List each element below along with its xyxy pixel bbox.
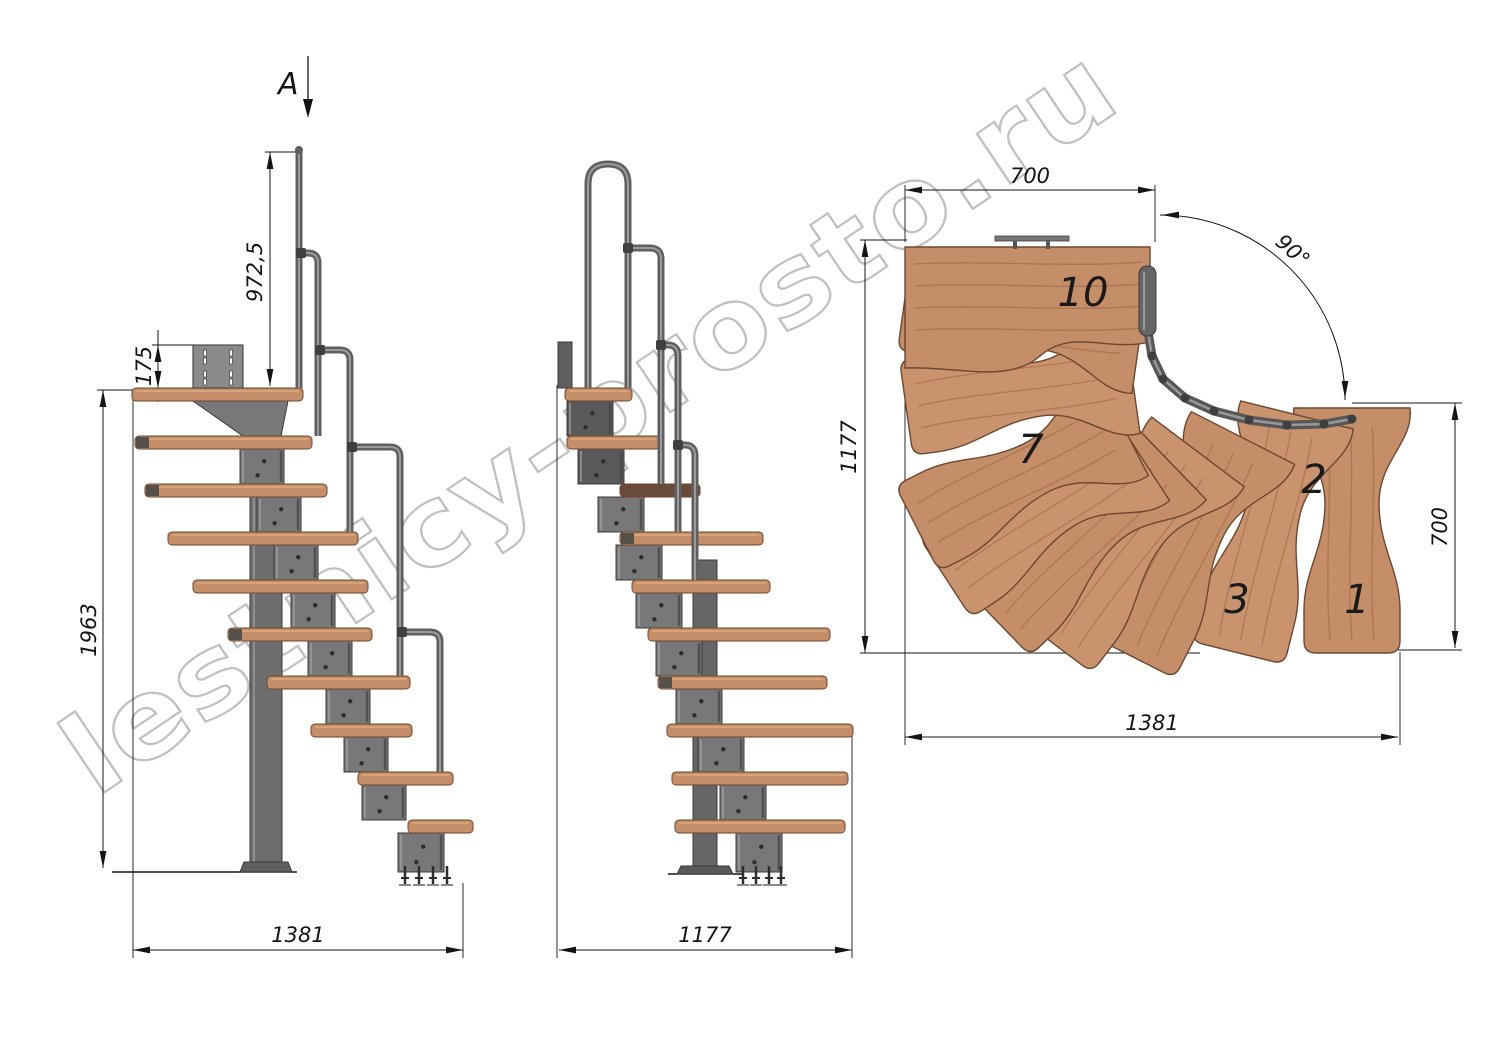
- stair-tread-side: [648, 628, 830, 641]
- stair-tread-side: [228, 628, 372, 641]
- handrail-clamp: [397, 627, 407, 637]
- spine-module: [720, 785, 766, 820]
- dim-plan-right-depth-label: 700: [1428, 507, 1452, 547]
- module-bolt-hole: [348, 699, 352, 703]
- module-bolt-hole: [341, 713, 345, 717]
- handrail-joint: [1148, 352, 1157, 361]
- module-bolt-hole: [421, 844, 425, 848]
- column-base: [240, 862, 292, 872]
- module-bolt-hole: [632, 569, 636, 573]
- stair-tread-side: [311, 724, 412, 737]
- bracket-stub: [1013, 241, 1017, 249]
- module-bolt-hole: [377, 809, 381, 813]
- module-bolt-hole: [699, 699, 703, 703]
- module-bolt-hole: [323, 665, 327, 669]
- spine-module: [636, 593, 682, 628]
- tread-end-cap: [146, 485, 159, 496]
- dimension-arrow: [1162, 212, 1179, 219]
- spine-module: [598, 497, 644, 532]
- plate-hole: [204, 358, 207, 364]
- stair-tread-side: [658, 676, 827, 689]
- module-bolt-hole: [679, 651, 683, 655]
- module-bolt-hole: [639, 555, 643, 559]
- dimension-arrow: [267, 152, 274, 169]
- dimension-arrow: [133, 947, 150, 954]
- dimension-arrow: [100, 851, 107, 868]
- spine-module: [257, 497, 301, 532]
- dim-plan-left-depth-label: 1177: [837, 420, 861, 474]
- column-base: [677, 866, 733, 874]
- spine-module: [656, 641, 702, 676]
- stair-tread-side: [168, 532, 358, 545]
- dim-plate-height-label: 175: [132, 346, 156, 386]
- dimension-arrow: [446, 947, 463, 954]
- stair-tread-side: [135, 436, 312, 449]
- module-bolt-hole: [289, 569, 293, 573]
- stair-tread-side: [632, 580, 770, 593]
- module-bolt-hole: [296, 555, 300, 559]
- dim-plan-top-width-label: 700: [1010, 164, 1050, 188]
- module-bolt-hole: [366, 747, 370, 751]
- spine-module: [291, 593, 335, 628]
- dimension-arrow: [1381, 734, 1398, 741]
- handrail-tube: [320, 350, 350, 532]
- plan-tread-number-10: 10: [1058, 270, 1109, 316]
- dimension-arrow: [559, 947, 576, 954]
- stair-tread-side: [565, 388, 632, 401]
- section-arrow-label: A: [276, 67, 299, 102]
- handrail-joint: [1283, 421, 1292, 430]
- spine-module: [326, 689, 370, 724]
- module-bolt-hole: [262, 459, 266, 463]
- spine-module: [344, 737, 388, 772]
- dimension-arrow: [905, 734, 922, 741]
- module-bolt-hole: [652, 617, 656, 621]
- handrail-clamp: [673, 440, 683, 450]
- staircase-technical-drawing: lestnicy-prosto.ru A 972,5 175 1963 1381…: [0, 0, 1500, 1061]
- plan-view: [860, 185, 1462, 745]
- module-bolt-hole: [743, 795, 747, 799]
- wall-mount-plate: [193, 345, 243, 388]
- stair-tread-side: [132, 388, 303, 401]
- module-bolt-hole: [590, 411, 594, 415]
- spine-module: [240, 449, 284, 484]
- module-bolt-hole: [621, 507, 625, 511]
- plan-tread-number-3: 3: [1224, 577, 1249, 623]
- handrail-joint: [1181, 394, 1190, 403]
- handrail-clamp: [296, 248, 306, 258]
- dimension-arrow: [1452, 631, 1459, 648]
- plate-hole: [230, 350, 233, 356]
- handrail-clamp: [315, 345, 325, 355]
- handrail-clamp: [656, 340, 666, 350]
- module-bolt-hole: [279, 507, 283, 511]
- plate-hole: [204, 379, 207, 385]
- handrail-tube: [301, 253, 318, 436]
- dim-side-length-label: 1381: [271, 923, 324, 947]
- spine-module: [578, 449, 624, 484]
- handrail-joint: [1210, 407, 1219, 416]
- spine-module: [362, 785, 406, 820]
- module-bolt-hole: [306, 617, 310, 621]
- module-bolt-hole: [759, 844, 763, 848]
- tread-end-cap: [136, 437, 149, 448]
- module-bolt-hole: [659, 603, 663, 607]
- dim-plan-bottom-length-label: 1381: [1125, 711, 1178, 735]
- dim-front-width-label: 1177: [678, 923, 732, 947]
- stair-tread-side: [145, 484, 327, 497]
- dimension-arrow: [267, 369, 274, 386]
- stair-tread-side: [675, 820, 845, 833]
- spine-module: [676, 689, 722, 724]
- stair-tread-side: [358, 772, 453, 785]
- dim-total-height-label: 1963: [77, 603, 101, 656]
- spine-module: [274, 545, 318, 580]
- module-bolt-hole: [272, 521, 276, 525]
- plate-hole: [230, 371, 233, 377]
- stair-tread-side: [672, 772, 848, 785]
- dim-turn-angle-label: 90°: [1271, 229, 1315, 272]
- spine-module: [698, 737, 744, 772]
- handrail-joint: [1348, 415, 1357, 424]
- module-bolt-hole: [752, 860, 756, 864]
- plate-hole: [230, 358, 233, 364]
- spine-module: [308, 641, 352, 676]
- dimension-arrow: [1342, 381, 1349, 398]
- handrail-tube-highlight: [320, 350, 350, 532]
- handrail-joint: [1159, 375, 1168, 384]
- module-bolt-hole: [384, 795, 388, 799]
- spine-funnel: [193, 401, 288, 441]
- plate-hole: [204, 350, 207, 356]
- module-bolt-hole: [672, 665, 676, 669]
- spine-module: [567, 401, 613, 436]
- handrail-joint: [1320, 420, 1329, 429]
- dimension-arrow: [1452, 403, 1459, 420]
- module-bolt-hole: [614, 521, 618, 525]
- module-bolt-hole: [692, 713, 696, 717]
- module-bolt-hole: [330, 651, 334, 655]
- tread-end-cap: [659, 677, 672, 688]
- tread-end-cap: [229, 629, 242, 640]
- dim-handrail-height-label: 972,5: [243, 242, 267, 302]
- module-bolt-hole: [736, 809, 740, 813]
- handrail-tube-highlight: [402, 632, 440, 772]
- plan-tread-number-1: 1: [1344, 577, 1369, 623]
- stair-tread-side: [667, 724, 853, 737]
- module-bolt-hole: [594, 473, 598, 477]
- plate-edge: [558, 342, 572, 388]
- module-bolt-hole: [714, 761, 718, 765]
- stair-tread-side: [193, 580, 368, 593]
- module-bolt-hole: [313, 603, 317, 607]
- plan-handrail-hoop: [1139, 266, 1156, 336]
- handrail-joint: [1245, 416, 1254, 425]
- handrail-clamp: [623, 243, 633, 253]
- rail-cap: [295, 146, 303, 154]
- spine-module: [616, 545, 662, 580]
- plan-tread-number-2: 2: [1301, 457, 1326, 503]
- dimension-arrow: [862, 636, 869, 653]
- plan-tread-number-7: 7: [1018, 427, 1044, 473]
- dimension-arrow: [100, 390, 107, 407]
- module-bolt-hole: [255, 473, 259, 477]
- handrail-clamp: [347, 442, 357, 452]
- stair-tread-side: [567, 436, 660, 449]
- plate-hole: [204, 371, 207, 377]
- technical-drawing-page: lestnicy-prosto.ru A 972,5 175 1963 1381…: [0, 0, 1500, 1061]
- module-bolt-hole: [601, 459, 605, 463]
- stair-tread-side: [620, 484, 700, 497]
- plate-hole: [230, 379, 233, 385]
- tread-end-cap: [621, 533, 634, 544]
- module-bolt-hole: [721, 747, 725, 751]
- stair-tread-side: [408, 820, 473, 833]
- bracket-stub: [1046, 241, 1050, 249]
- angle-arc: [1160, 215, 1345, 400]
- handrail-tube: [402, 632, 440, 772]
- dimension-arrow: [835, 947, 852, 954]
- dimension-arrow: [1138, 187, 1155, 194]
- module-bolt-hole: [414, 860, 418, 864]
- section-arrowhead: [303, 99, 313, 118]
- module-bolt-hole: [359, 761, 363, 765]
- stair-tread-side: [267, 676, 410, 689]
- wall-bracket: [995, 236, 1069, 241]
- module-bolt-hole: [583, 425, 587, 429]
